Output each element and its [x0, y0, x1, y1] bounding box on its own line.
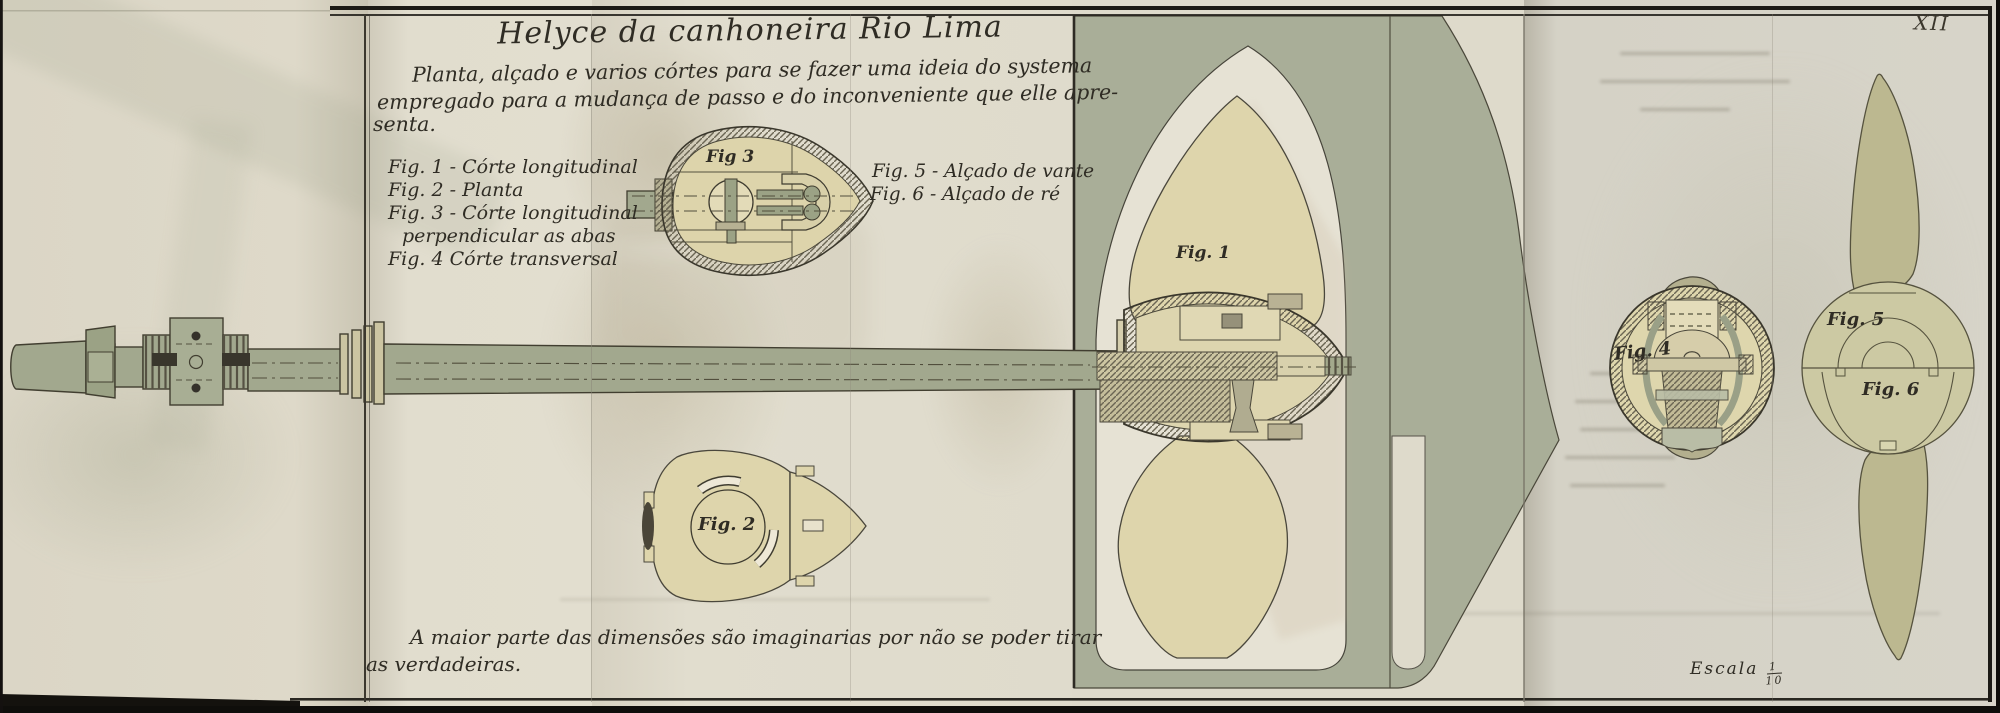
subtitle-line-3: senta. [373, 112, 436, 136]
legend-item-1: Fig. 1 - Córte longitudinal [388, 156, 638, 178]
footnote-line-1: A maior parte das dimensões são imaginar… [410, 625, 1101, 649]
scale-fraction: 1 10 [1765, 660, 1785, 686]
scanned-plate: Helyce da canhoneira Rio Lima Planta, al… [0, 0, 2000, 713]
fig4-drawing [1610, 277, 1774, 459]
fold-crease [850, 14, 851, 702]
fig6-label: Fig. 6 [1862, 379, 1919, 400]
footnote-line-2: as verdadeiras. [366, 652, 521, 676]
fold-crease [591, 14, 592, 702]
legend-item-2: Fig. 2 - Planta [388, 179, 523, 201]
fig3-label: Fig 3 [706, 147, 754, 167]
fold-crease [1772, 14, 1773, 702]
legend-item-4: Fig. 4 Córte transversal [388, 248, 618, 270]
fig5-fig6-drawing [1802, 74, 1974, 659]
shaft-drawing [11, 318, 1126, 412]
legend-item-3: Fig. 3 - Córte longitudinal [388, 202, 638, 224]
legend-right-item-1: Fig. 5 - Alçado de vante [872, 161, 1094, 182]
fold-crease [369, 14, 370, 702]
scale-label: Escala [1690, 659, 1758, 679]
plate-number: XII [1914, 10, 1951, 35]
legend-right-item-2: Fig. 6 - Alçado de ré [870, 184, 1060, 205]
scale-numerator: 1 [1766, 661, 1782, 675]
fig2-label: Fig. 2 [698, 514, 755, 535]
fold-crease [1523, 14, 1525, 702]
fig5-label: Fig. 5 [1827, 309, 1884, 330]
scale-annotation: Escala 1 10 [1690, 659, 1783, 684]
fig1-label: Fig. 1 [1176, 243, 1230, 263]
scale-denominator: 10 [1765, 673, 1784, 686]
plate-drawing [0, 0, 2000, 713]
legend-item-3b: perpendicular as abas [402, 225, 615, 247]
fold-crease [364, 14, 366, 702]
